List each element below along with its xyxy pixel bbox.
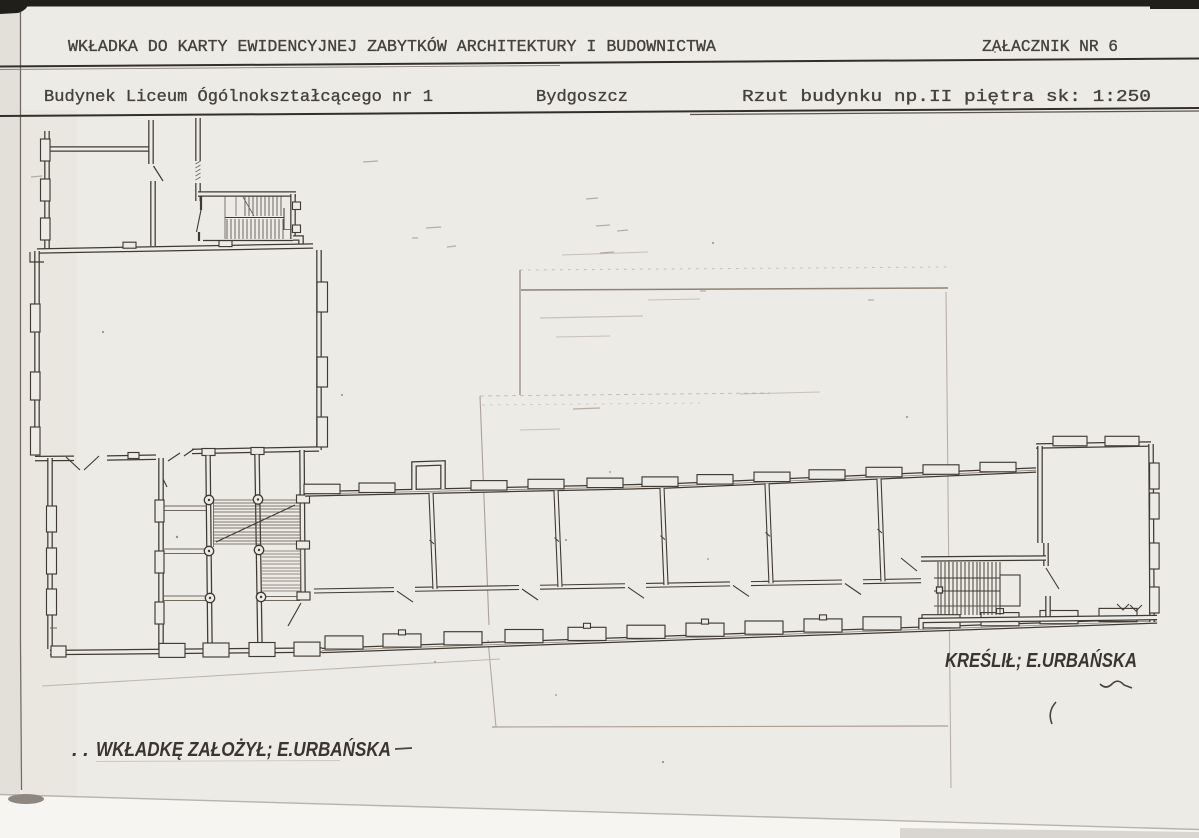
svg-text:Budynek Liceum Ógólnokształcąc: Budynek Liceum Ógólnokształcącego nr 1 [44, 87, 433, 107]
svg-text:Rzut budynku np.II piętra sk:: Rzut budynku np.II piętra sk: 1:250 [742, 88, 1151, 107]
svg-text:WKŁADKĘ ZAŁOŻYŁ; E.URBAŃSKA: WKŁADKĘ ZAŁOŻYŁ; E.URBAŃSKA [96, 737, 391, 761]
svg-text:ZAŁACZNIK NR 6: ZAŁACZNIK NR 6 [982, 37, 1118, 56]
svg-text:Bydgoszcz: Bydgoszcz [536, 88, 628, 107]
svg-text:WKŁADKA DO KARTY EWIDENCYJNEJ: WKŁADKA DO KARTY EWIDENCYJNEJ ZABYTKÓW A… [68, 37, 716, 56]
svg-text:. .: . . [72, 739, 89, 761]
svg-text:KREŚLIŁ; E.URBAŃSKA: KREŚLIŁ; E.URBAŃSKA [945, 648, 1137, 672]
